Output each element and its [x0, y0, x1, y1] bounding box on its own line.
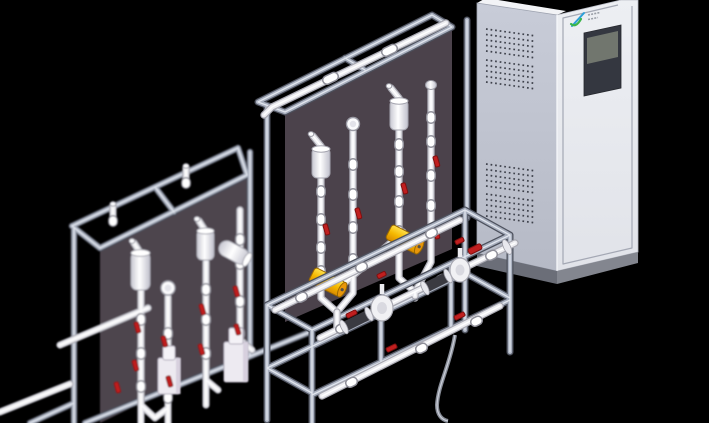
hose-nozzle [129, 239, 135, 244]
hmi-screen [584, 25, 621, 96]
cad-render [0, 0, 709, 423]
pulsation-dampener [131, 250, 150, 290]
hose-nozzle [386, 84, 392, 89]
pressure-gauge [347, 118, 360, 131]
hose-nozzle [308, 132, 314, 137]
pulsation-dampener [390, 98, 408, 130]
pipe-stub-cap [183, 164, 189, 168]
pulsation-dampener [197, 228, 214, 260]
gauge-dome [426, 81, 437, 90]
hose-nozzle [194, 217, 200, 222]
pulsation-dampener [312, 146, 330, 178]
pipe-stub-cap [110, 202, 116, 206]
pressure-gauge [161, 281, 175, 295]
cad-render-canvas [0, 0, 709, 423]
cabinet-side-panel [477, 3, 557, 271]
